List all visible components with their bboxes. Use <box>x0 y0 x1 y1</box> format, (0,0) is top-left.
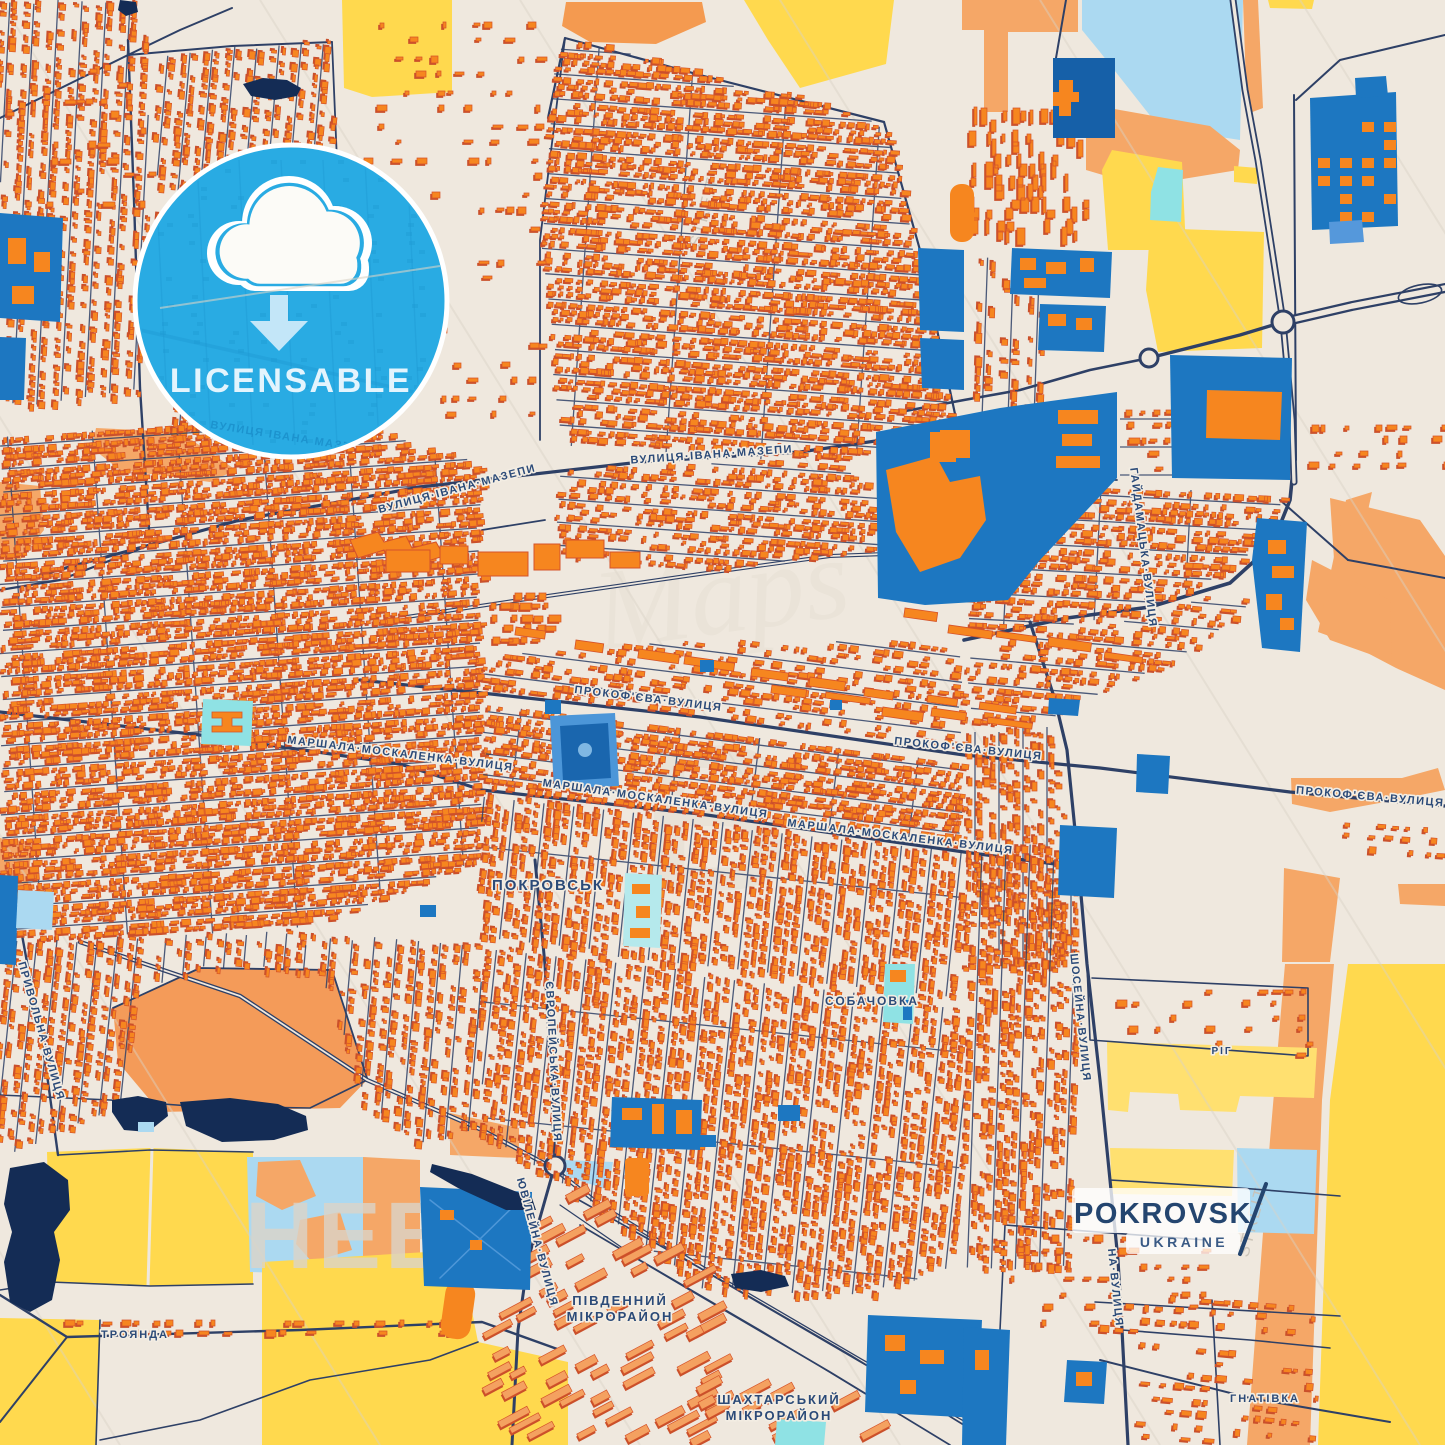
svg-text:СОБАЧОВКА: СОБАЧОВКА <box>825 994 919 1008</box>
svg-text:POKROVSK: POKROVSK <box>1074 1198 1252 1230</box>
svg-text:РІГ: РІГ <box>1211 1046 1232 1057</box>
svg-text:ГНАТІВКА: ГНАТІВКА <box>1230 1393 1300 1405</box>
svg-text:МІКРОРАЙОН: МІКРОРАЙОН <box>726 1408 833 1423</box>
svg-text:МІКРОРАЙОН: МІКРОРАЙОН <box>567 1309 674 1324</box>
svg-text:UKRAINE: UKRAINE <box>1140 1234 1228 1250</box>
svg-text:LICENSABLE: LICENSABLE <box>170 362 412 400</box>
svg-text:ПІВДЕННИЙ: ПІВДЕННИЙ <box>572 1293 668 1308</box>
svg-text:ПОКРОВСЬК: ПОКРОВСЬК <box>492 877 604 894</box>
svg-text:ТРОЯНДА: ТРОЯНДА <box>101 1329 169 1341</box>
svg-text:ШАХТАРСЬКИЙ: ШАХТАРСЬКИЙ <box>717 1392 840 1407</box>
